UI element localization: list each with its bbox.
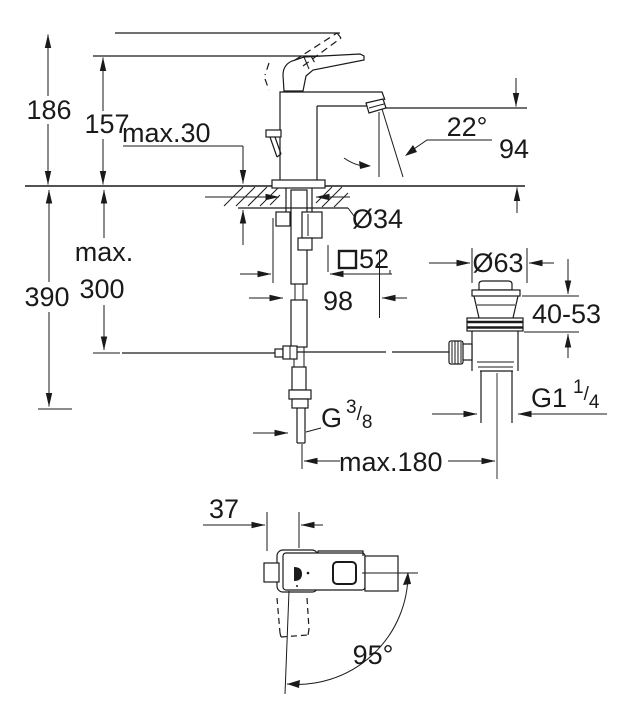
label-overall-height: 186: [26, 95, 71, 125]
waste-flange: [472, 290, 520, 296]
label-waste-flange-diameter: Ø63: [472, 248, 523, 278]
plan-handle-rotated-dashed: [277, 598, 309, 637]
label-plan-offset: 37: [209, 494, 239, 524]
waste-seal-ring: [467, 318, 523, 331]
label-waste-thread: G11/4: [531, 377, 600, 413]
plan-spout-nub: [264, 563, 279, 582]
label-clamping-range: 40-53: [532, 299, 601, 329]
base-flange: [272, 180, 325, 188]
waste-plug: [479, 281, 512, 290]
rod-coupler: [275, 346, 297, 359]
mounting-nut: [302, 212, 322, 238]
mounting-washer: [276, 212, 290, 226]
label-spout-reach: 98: [323, 286, 353, 316]
label-rod-reach: max.180: [339, 447, 443, 477]
label-spout-outlet-height: 94: [499, 134, 529, 164]
label-stream-angle: 22°: [447, 112, 488, 142]
square-symbol: [339, 251, 356, 268]
label-supply-thread: G3/8: [321, 397, 372, 433]
pop-up-rod-lever: [266, 130, 281, 157]
technical-drawing-page: 186 157 max.30 22° 94 Ø34 max. 390 300 5…: [0, 0, 627, 720]
faucet-dimension-drawing: 186 157 max.30 22° 94 Ø34 max. 390 300 5…: [0, 0, 627, 720]
water-stream-lines: [344, 109, 403, 177]
waste-tailpipe: [481, 371, 512, 479]
label-hose-length: 390: [24, 282, 69, 312]
knurled-adjuster-knob: [449, 341, 463, 364]
label-handle-swing: 95°: [353, 640, 394, 670]
label-deck-thickness: max.30: [122, 118, 211, 148]
supply-hose-connector: [289, 390, 311, 443]
label-rod-depth: 300: [79, 274, 124, 304]
label-max-prefix: max.: [75, 237, 134, 267]
pop-up-waste-assembly: [449, 281, 523, 479]
angle-arc-arrowhead: [359, 161, 371, 169]
label-hole-diameter: Ø34: [352, 204, 403, 234]
label-base-square: 52: [359, 244, 389, 274]
